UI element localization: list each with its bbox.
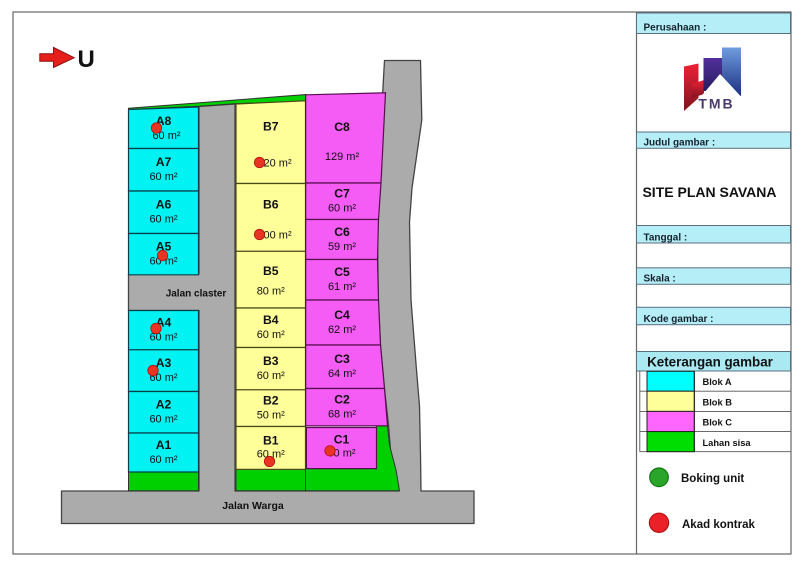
svg-text:Tanggal :: Tanggal : — [644, 232, 688, 243]
svg-text:60 m²: 60 m² — [257, 329, 285, 341]
svg-text:C6: C6 — [334, 225, 350, 239]
svg-text:Blok A: Blok A — [703, 377, 732, 387]
svg-text:60 m²: 60 m² — [149, 171, 177, 183]
svg-text:80 m²: 80 m² — [257, 286, 285, 298]
svg-text:C7: C7 — [334, 187, 350, 201]
svg-text:50 m²: 50 m² — [257, 410, 285, 422]
svg-text:C4: C4 — [334, 308, 350, 322]
svg-text:61 m²: 61 m² — [328, 281, 356, 293]
svg-text:TMB: TMB — [698, 96, 734, 112]
svg-text:64 m²: 64 m² — [328, 368, 356, 380]
svg-text:Jalan Warga: Jalan Warga — [222, 500, 284, 512]
svg-text:60 m²: 60 m² — [328, 203, 356, 215]
svg-text:B3: B3 — [263, 354, 279, 368]
svg-text:68 m²: 68 m² — [328, 409, 356, 421]
svg-text:Jalan claster: Jalan claster — [166, 289, 227, 300]
svg-text:Judul gambar :: Judul gambar : — [644, 138, 716, 149]
svg-text:A2: A2 — [156, 398, 172, 412]
svg-text:C1: C1 — [334, 433, 350, 447]
svg-text:60 m²: 60 m² — [149, 454, 177, 466]
svg-text:Kode gambar :: Kode gambar : — [644, 314, 714, 325]
svg-text:B7: B7 — [263, 120, 279, 134]
svg-text:62 m²: 62 m² — [328, 324, 356, 336]
svg-text:59 m²: 59 m² — [328, 241, 356, 253]
svg-text:Blok C: Blok C — [703, 418, 733, 428]
svg-text:Boking unit: Boking unit — [681, 473, 744, 485]
svg-text:C2: C2 — [334, 393, 350, 407]
svg-text:SITE PLAN SAVANA: SITE PLAN SAVANA — [642, 184, 776, 200]
svg-text:60 m²: 60 m² — [257, 370, 285, 382]
svg-text:60 m²: 60 m² — [149, 214, 177, 226]
svg-text:A3: A3 — [156, 356, 172, 370]
svg-text:C3: C3 — [334, 352, 350, 366]
svg-text:B5: B5 — [263, 264, 279, 278]
svg-text:B4: B4 — [263, 313, 279, 327]
svg-text:60 m²: 60 m² — [149, 414, 177, 426]
svg-text:B1: B1 — [263, 433, 279, 447]
svg-text:B2: B2 — [263, 394, 279, 408]
svg-text:U: U — [78, 46, 95, 73]
svg-text:Keterangan gambar: Keterangan gambar — [647, 355, 774, 370]
svg-text:B6: B6 — [263, 198, 279, 212]
svg-text:A6: A6 — [156, 198, 172, 212]
svg-text:Blok B: Blok B — [703, 397, 733, 407]
svg-text:C5: C5 — [334, 265, 350, 279]
svg-text:Perusahaan :: Perusahaan : — [644, 23, 707, 34]
svg-text:A1: A1 — [156, 438, 172, 452]
svg-text:C8: C8 — [334, 120, 350, 134]
svg-text:129 m²: 129 m² — [325, 151, 360, 163]
svg-text:Skala :: Skala : — [644, 274, 676, 285]
svg-text:A7: A7 — [156, 155, 172, 169]
svg-text:Lahan sisa: Lahan sisa — [703, 438, 752, 448]
svg-text:Akad kontrak: Akad kontrak — [682, 519, 755, 531]
